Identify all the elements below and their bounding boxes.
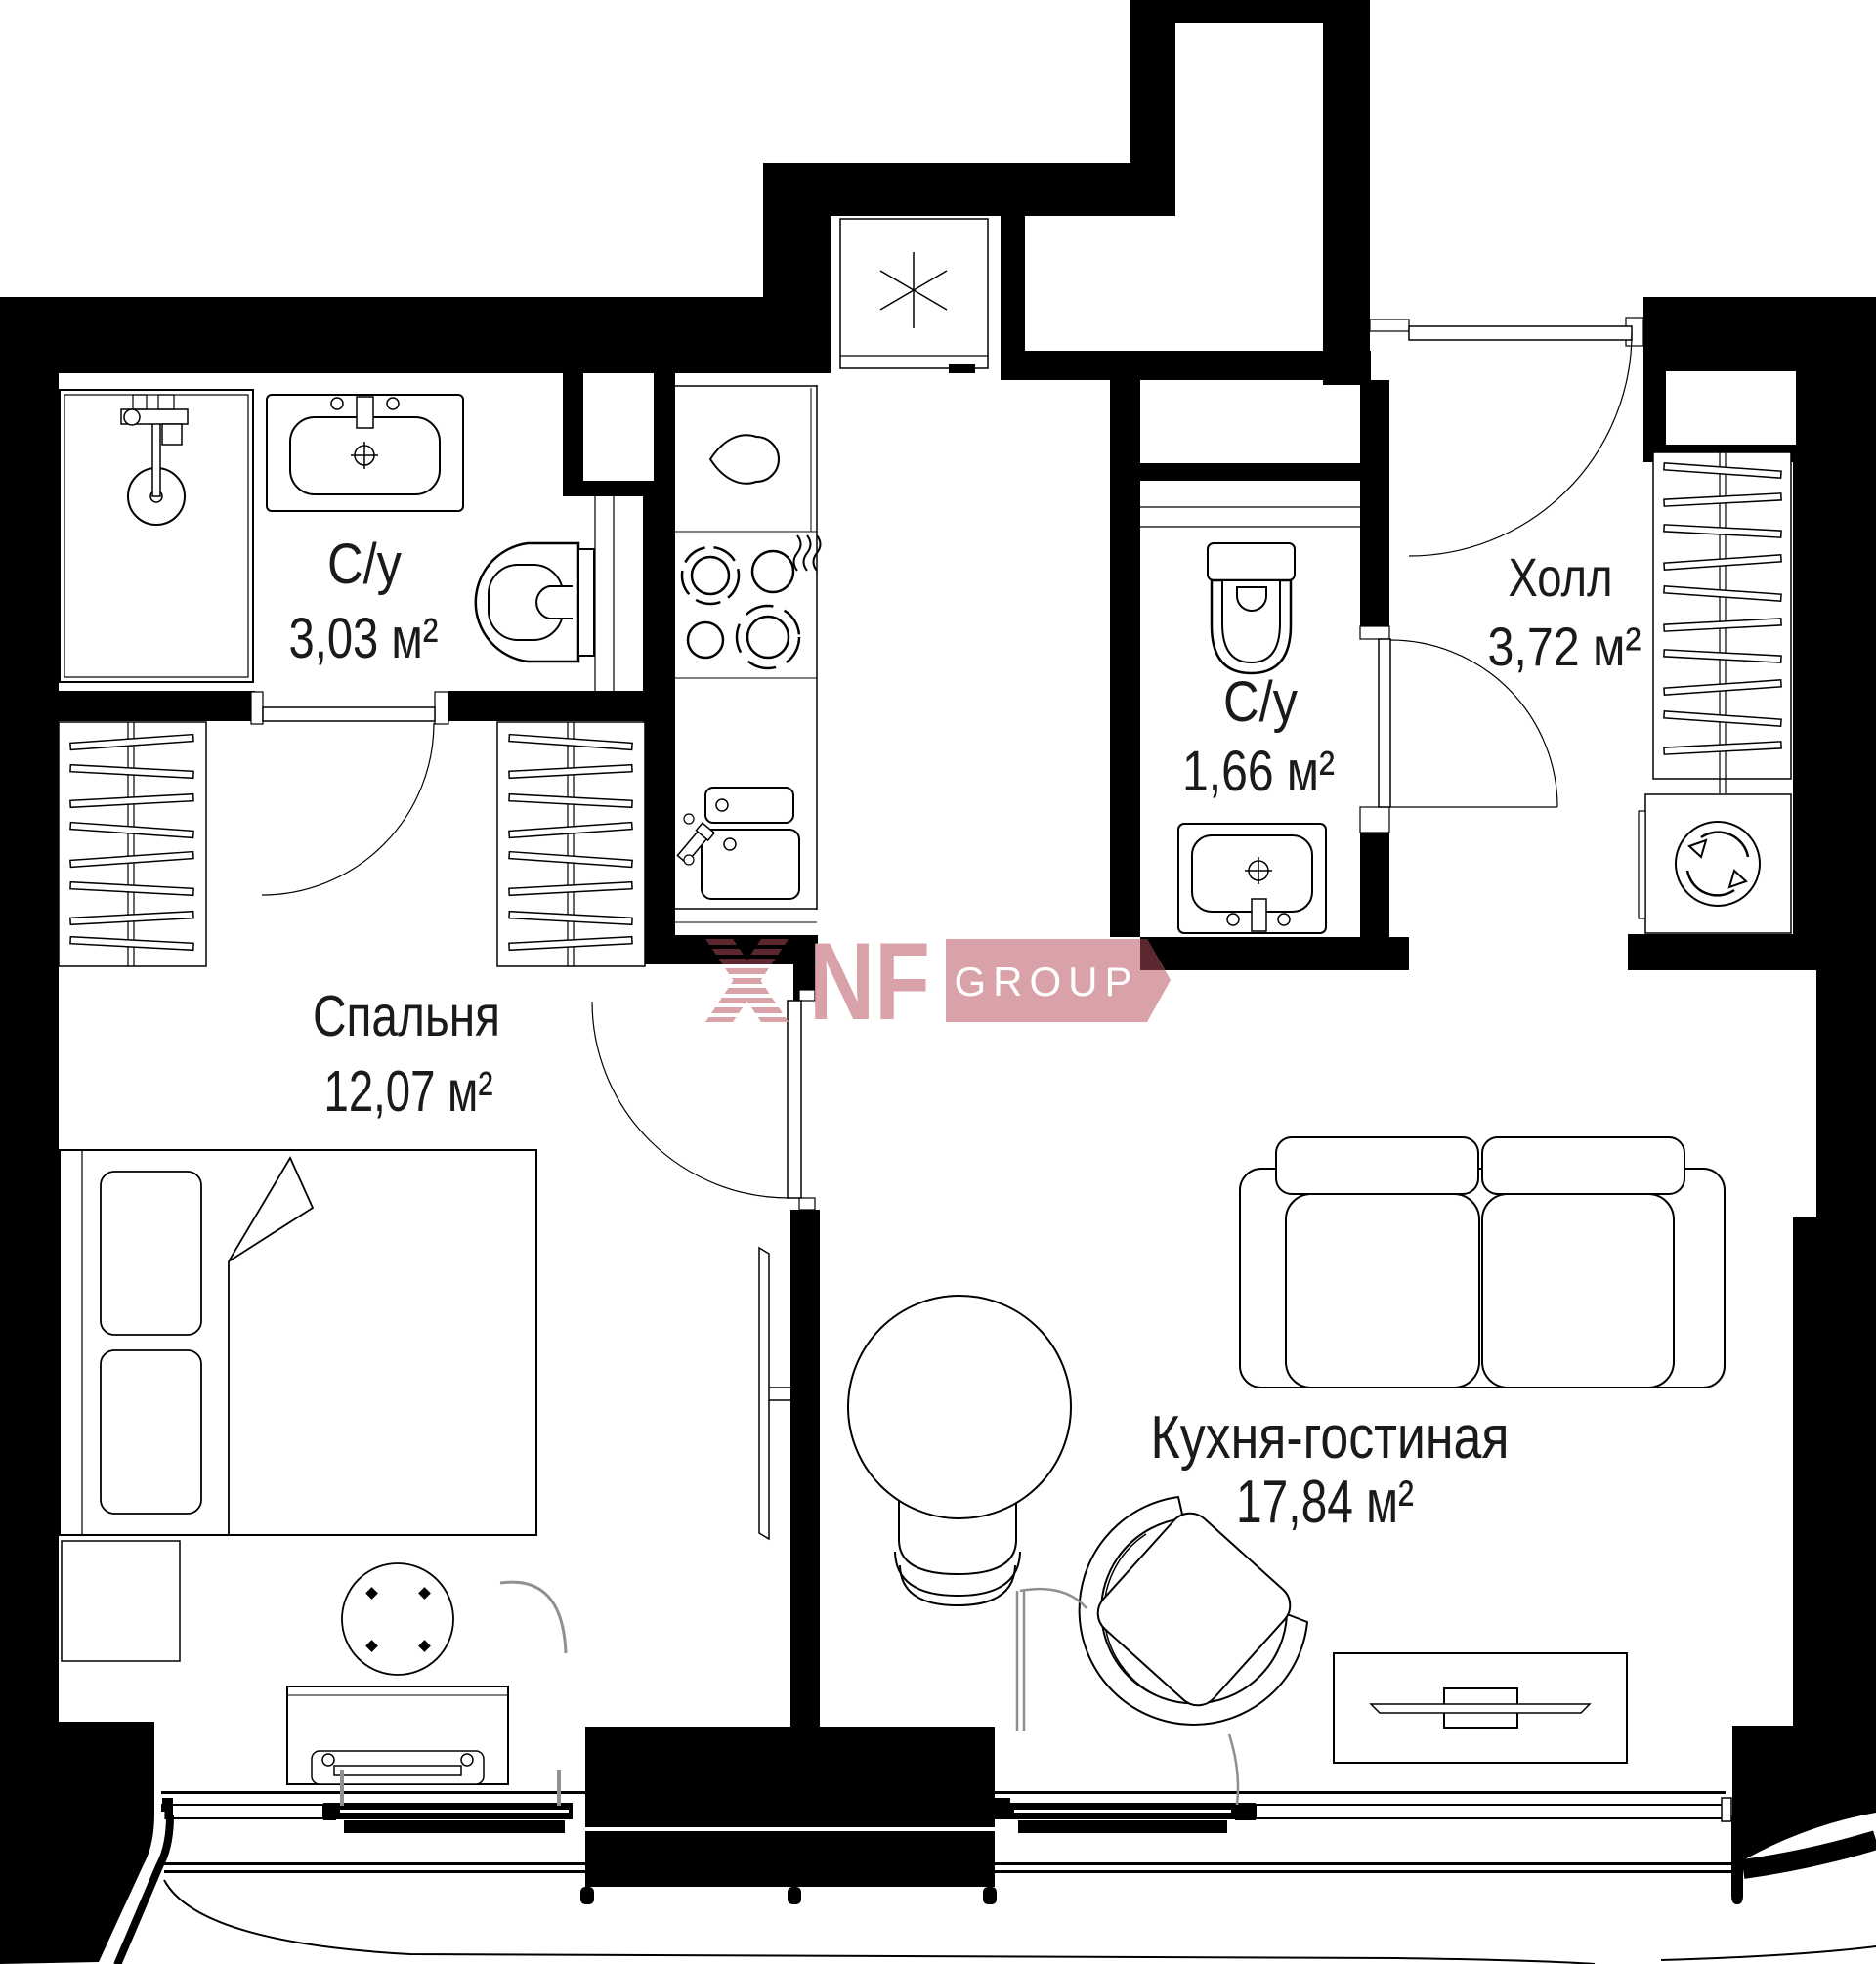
- svg-text:17,84 м²: 17,84 м²: [1236, 1469, 1414, 1536]
- svg-text:12,07 м²: 12,07 м²: [324, 1059, 493, 1124]
- svg-text:1,66 м²: 1,66 м²: [1182, 740, 1335, 803]
- svg-text:GROUP: GROUP: [954, 959, 1138, 1004]
- svg-text:С/у: С/у: [1223, 670, 1298, 734]
- svg-text:NF: NF: [809, 920, 930, 1043]
- svg-text:Кухня-гостиная: Кухня-гостиная: [1151, 1404, 1510, 1472]
- svg-text:3,72 м²: 3,72 м²: [1488, 616, 1641, 677]
- svg-text:С/у: С/у: [327, 533, 402, 596]
- svg-text:Холл: Холл: [1509, 546, 1613, 608]
- svg-text:Спальня: Спальня: [313, 984, 500, 1048]
- svg-text:3,03 м²: 3,03 м²: [289, 607, 439, 670]
